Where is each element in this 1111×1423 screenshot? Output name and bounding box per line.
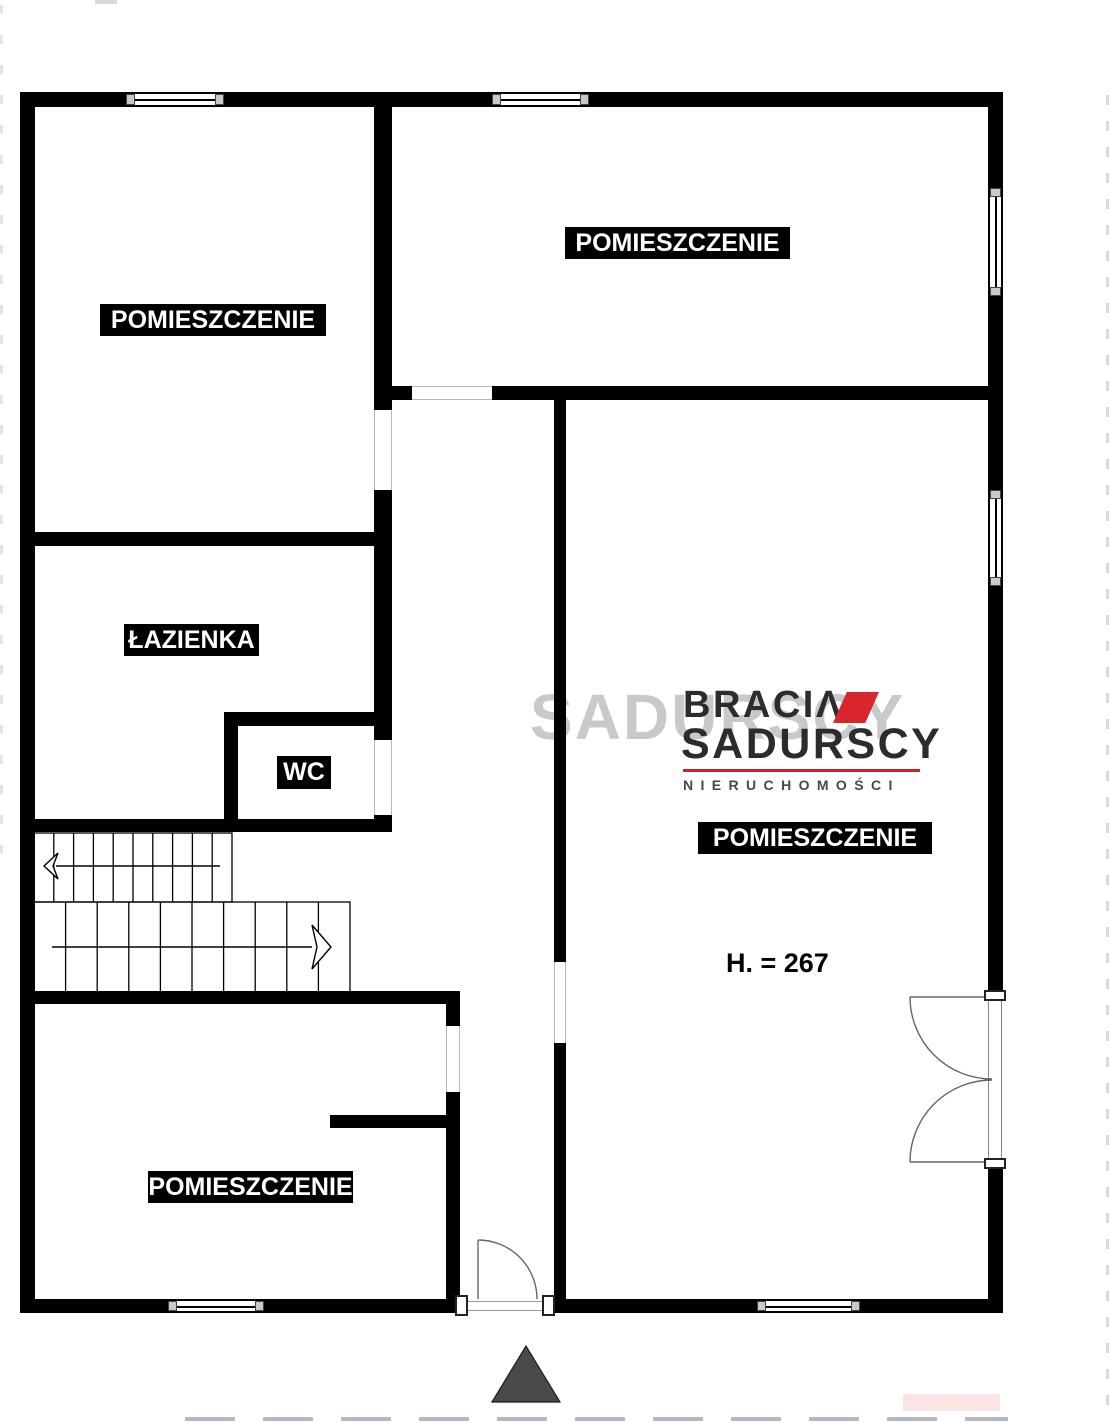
- door-jamb: [984, 990, 1006, 1001]
- room-label-main: POMIESZCZENIE: [698, 822, 932, 854]
- room-label-bottom-left: POMIESZCZENIE: [148, 1171, 353, 1203]
- door-jamb: [455, 1295, 468, 1316]
- floor-plan: SADURSCY: [0, 0, 1111, 1423]
- double-door-swing-top: [910, 997, 992, 1079]
- door-jamb: [542, 1295, 555, 1316]
- room-label-bathroom: ŁAZIENKA: [124, 624, 259, 656]
- door-jamb: [984, 1158, 1006, 1169]
- room-label-wc: WC: [277, 756, 331, 789]
- room-label-top-left: POMIESZCZENIE: [100, 304, 326, 336]
- room-label-top-right: POMIESZCZENIE: [565, 227, 790, 259]
- double-door-swing-bottom: [910, 1080, 992, 1162]
- logo-line3: NIERUCHOMOŚCI: [683, 777, 900, 793]
- agency-logo: BRACIΛ SADURSCY NIERUCHOMOŚCI: [681, 688, 941, 800]
- stairs-risers-upper: [54, 833, 212, 902]
- entrance-door-swing: [478, 1240, 537, 1299]
- logo-line2: SADURSCY: [681, 720, 942, 769]
- stairs-risers-lower: [66, 902, 319, 994]
- logo-divider: [683, 769, 920, 772]
- stairs-arrow-right-icon: [312, 925, 331, 969]
- plan-linework: [0, 0, 1111, 1423]
- stairs-arrow-left-icon: [44, 853, 58, 879]
- entrance-arrow-icon: [492, 1346, 560, 1402]
- ceiling-height-note: H. = 267: [726, 948, 829, 979]
